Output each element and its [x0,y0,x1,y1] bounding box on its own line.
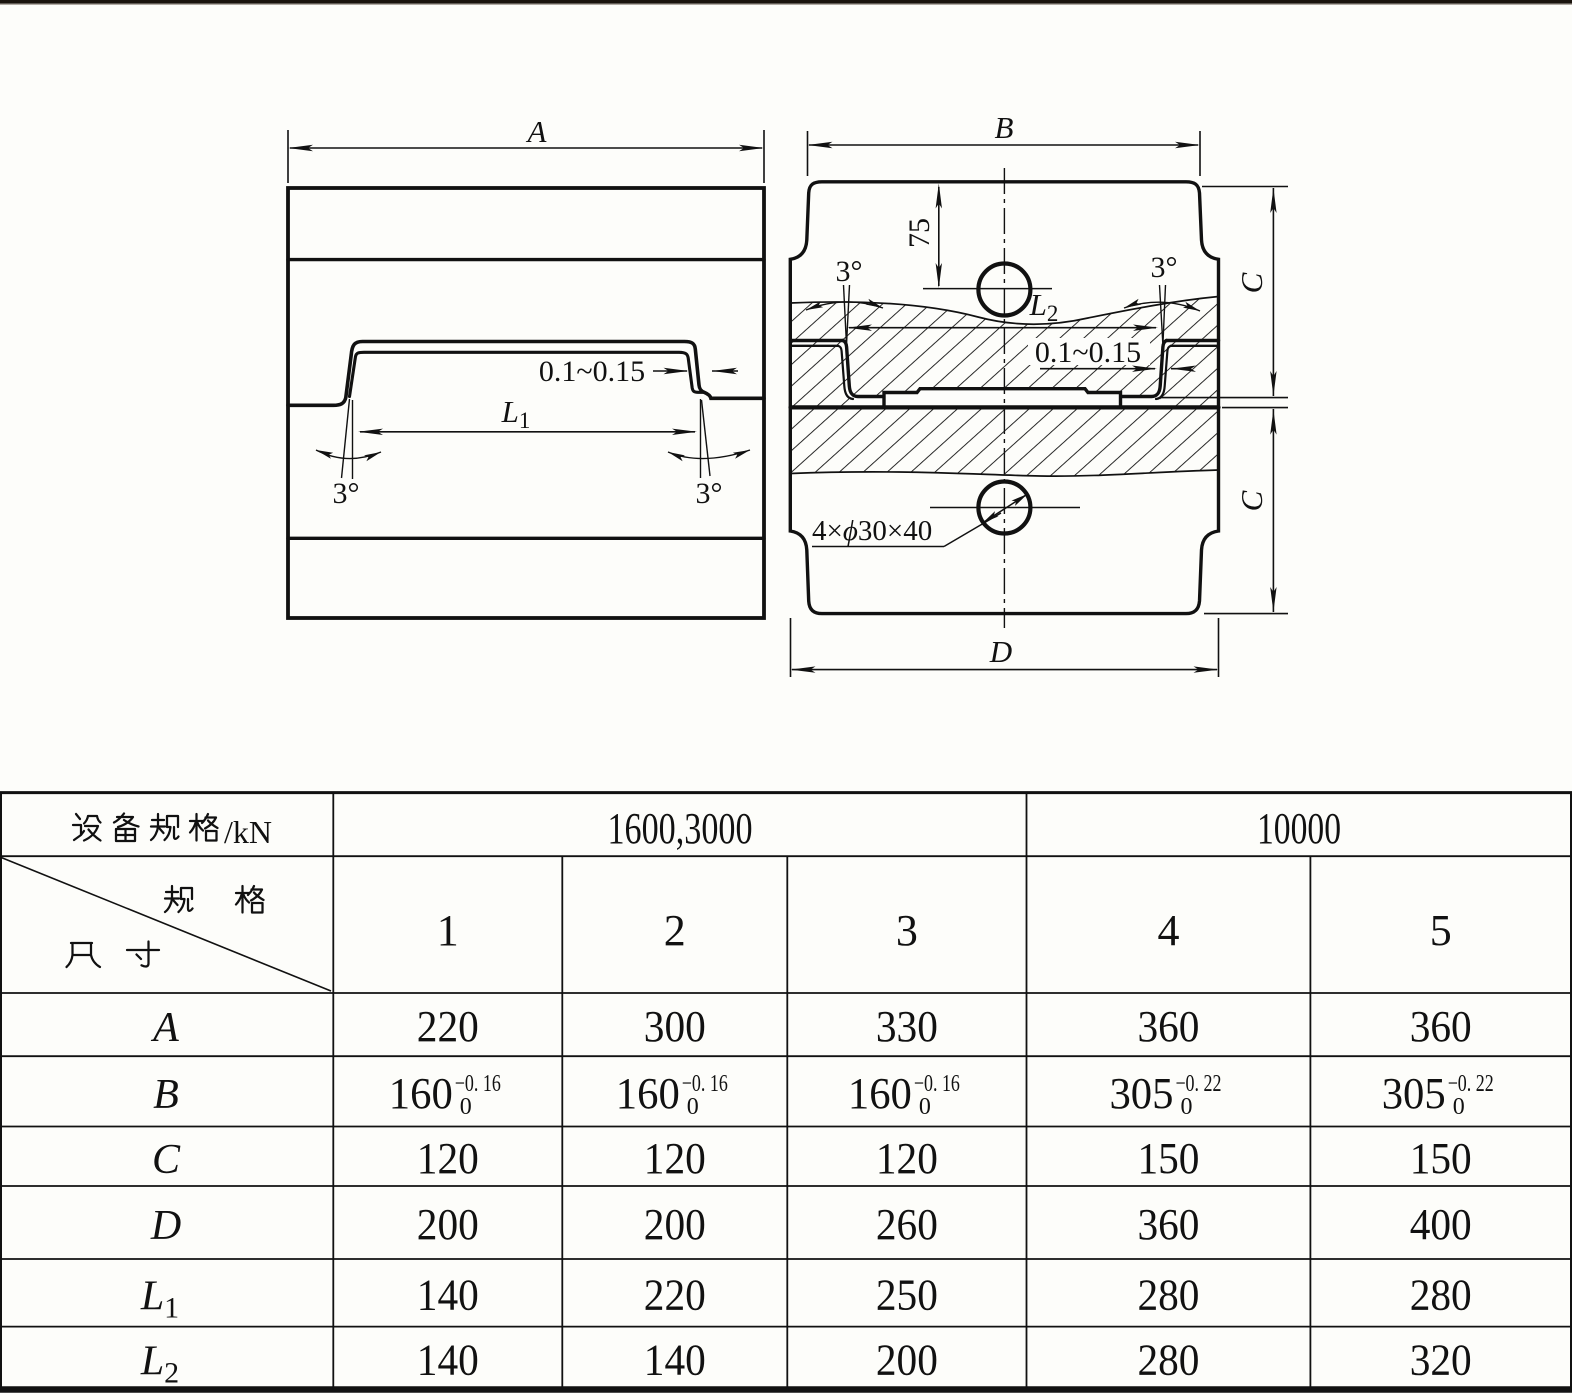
svg-text:360: 360 [1410,1002,1472,1051]
svg-text:0: 0 [1453,1094,1465,1120]
svg-text:1600,3000: 1600,3000 [608,804,753,853]
svg-text:A: A [526,114,548,149]
svg-text:280: 280 [1137,1270,1199,1319]
svg-text:1: 1 [437,906,459,955]
svg-text:0: 0 [460,1094,472,1120]
svg-text:/kN: /kN [224,814,272,850]
svg-text:B: B [995,110,1014,145]
svg-text:330: 330 [876,1002,938,1051]
svg-text:150: 150 [1137,1134,1199,1183]
svg-text:5: 5 [1430,906,1452,955]
svg-text:400: 400 [1410,1200,1472,1249]
svg-text:C: C [152,1137,181,1183]
svg-text:280: 280 [1410,1270,1472,1319]
svg-text:120: 120 [417,1134,479,1183]
svg-text:360: 360 [1137,1200,1199,1249]
svg-text:360: 360 [1137,1002,1199,1051]
svg-text:200: 200 [876,1336,938,1385]
svg-text:250: 250 [876,1270,938,1319]
svg-text:140: 140 [417,1336,479,1385]
svg-text:75: 75 [903,218,936,248]
svg-text:D: D [989,634,1012,669]
svg-text:160: 160 [616,1069,680,1118]
svg-text:0.1~0.15: 0.1~0.15 [539,355,645,388]
svg-text:160: 160 [389,1069,453,1118]
svg-text:D: D [150,1203,181,1249]
svg-text:200: 200 [417,1200,479,1249]
svg-text:150: 150 [1410,1134,1472,1183]
svg-text:0: 0 [687,1094,699,1120]
svg-text:140: 140 [644,1336,706,1385]
svg-text:3°: 3° [836,255,863,288]
svg-text:4: 4 [1157,906,1179,955]
svg-text:300: 300 [644,1002,706,1051]
svg-text:C: C [1234,272,1269,293]
svg-text:3: 3 [896,906,918,955]
svg-text:0: 0 [1180,1094,1192,1120]
svg-text:0.1~0.15: 0.1~0.15 [1035,336,1141,369]
svg-text:4×ϕ30×40: 4×ϕ30×40 [812,515,932,547]
svg-text:305: 305 [1382,1069,1446,1118]
svg-text:120: 120 [644,1134,706,1183]
svg-text:320: 320 [1410,1336,1472,1385]
svg-text:220: 220 [644,1270,706,1319]
svg-text:A: A [150,1005,179,1051]
svg-text:3°: 3° [333,477,360,510]
svg-text:2: 2 [664,906,686,955]
svg-text:C: C [1234,490,1269,511]
svg-text:3°: 3° [696,477,723,510]
svg-text:0: 0 [919,1094,931,1120]
svg-text:3°: 3° [1151,251,1178,284]
svg-text:200: 200 [644,1200,706,1249]
svg-text:B: B [153,1072,179,1118]
svg-text:120: 120 [876,1134,938,1183]
svg-text:10000: 10000 [1257,804,1341,853]
svg-text:260: 260 [876,1200,938,1249]
svg-text:140: 140 [417,1270,479,1319]
svg-text:280: 280 [1137,1336,1199,1385]
svg-text:305: 305 [1109,1069,1173,1118]
svg-text:220: 220 [417,1002,479,1051]
svg-text:160: 160 [848,1069,912,1118]
